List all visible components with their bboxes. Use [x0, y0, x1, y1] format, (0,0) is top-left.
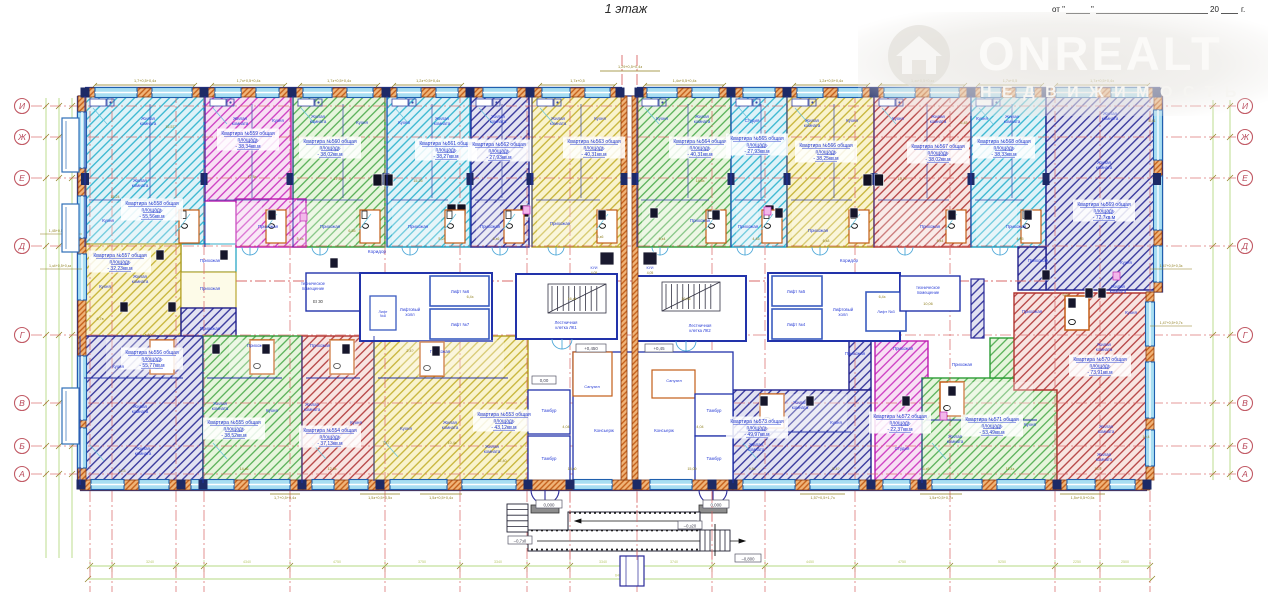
- svg-text:15,7з: 15,7з: [898, 177, 907, 181]
- svg-text:Б: Б: [19, 441, 25, 451]
- svg-text:Кухня: Кухня: [846, 118, 858, 123]
- svg-text:1,47+0,5+0,7з: 1,47+0,5+0,7з: [1160, 321, 1183, 325]
- svg-text:5,41: 5,41: [1148, 119, 1155, 123]
- svg-text:Кухня: Кухня: [112, 364, 124, 369]
- svg-text:14,з6: 14,з6: [240, 467, 249, 471]
- svg-text:4,05: 4,05: [647, 271, 654, 275]
- svg-text:Коридор: Коридор: [840, 258, 859, 263]
- svg-text:4,04: 4,04: [562, 425, 569, 429]
- svg-text:Прихожая: Прихожая: [408, 224, 429, 229]
- svg-text:17,5з: 17,5з: [248, 175, 257, 179]
- svg-text:6,7в: 6,7в: [96, 317, 103, 321]
- svg-text:Лифт №4: Лифт №4: [787, 322, 806, 327]
- svg-text:Прихожая: Прихожая: [1006, 224, 1027, 229]
- svg-text:9,5з: 9,5з: [749, 467, 756, 471]
- svg-text:Е: Е: [19, 173, 25, 183]
- svg-text:Прихожая: Прихожая: [920, 224, 941, 229]
- svg-text:Прихожая: Прихожая: [738, 224, 759, 229]
- svg-text:Кухня: Кухня: [99, 284, 111, 289]
- svg-text:комната: комната: [550, 121, 567, 126]
- svg-text:Кухня: Кухня: [1120, 260, 1132, 265]
- svg-text:1,7з+0,5+0,4з: 1,7з+0,5+0,4з: [237, 79, 261, 83]
- svg-text:1,2з+0,5+0,4з: 1,2з+0,5+0,4з: [819, 79, 843, 83]
- svg-text:Кухня: Кухня: [266, 408, 278, 413]
- svg-text:1,5з+0,5+0,4з: 1,5з+0,5+0,4з: [429, 496, 453, 500]
- svg-text:–0,з20: –0,з20: [684, 524, 697, 529]
- svg-text:Кухня: Кухня: [356, 120, 368, 125]
- svg-text:–0,800: –0,800: [742, 557, 755, 562]
- svg-text:Д: Д: [18, 241, 25, 251]
- svg-text:помещение: помещение: [917, 290, 940, 295]
- svg-text:помещение: помещение: [302, 286, 325, 291]
- svg-text:комната: комната: [1096, 347, 1113, 352]
- svg-text:Прихожая: Прихожая: [320, 224, 341, 229]
- svg-text:4750: 4750: [898, 560, 906, 564]
- svg-text:Прихожая: Прихожая: [1022, 309, 1043, 314]
- svg-text:+0,450: +0,450: [584, 346, 598, 351]
- svg-text:6,4з: 6,4з: [879, 295, 886, 299]
- svg-text:2250: 2250: [1073, 560, 1081, 564]
- svg-text:Прихожая: Прихожая: [480, 224, 501, 229]
- svg-text:Кухня: Кухня: [1024, 422, 1036, 427]
- svg-text:6,з8: 6,з8: [823, 239, 830, 243]
- svg-text:Тамбур: Тамбур: [542, 456, 557, 461]
- svg-text:Санузел: Санузел: [584, 384, 600, 389]
- svg-text:4,45: 4,45: [752, 237, 759, 241]
- svg-text:клетка ЛК2: клетка ЛК2: [689, 328, 711, 333]
- svg-text:Прихожая: Прихожая: [310, 343, 331, 348]
- svg-text:комната: комната: [140, 121, 157, 126]
- svg-text:В: В: [1242, 398, 1248, 408]
- svg-text:4340: 4340: [243, 560, 251, 564]
- svg-text:Кухня: Кухня: [272, 118, 284, 123]
- svg-text:комната: комната: [490, 119, 507, 124]
- svg-text:Студия: Студия: [895, 446, 910, 451]
- svg-text:Прихожая: Прихожая: [200, 258, 221, 263]
- svg-text:Лифт №3: Лифт №3: [877, 309, 895, 314]
- svg-text:комната: комната: [132, 409, 149, 414]
- svg-text:Кухня: Кухня: [892, 116, 904, 121]
- svg-text:16,з6: 16,з6: [568, 297, 577, 301]
- svg-text:6,55: 6,55: [348, 229, 355, 233]
- svg-text:3240: 3240: [146, 560, 154, 564]
- svg-text:Прихожая: Прихожая: [200, 286, 221, 291]
- svg-text:КУИ: КУИ: [591, 266, 598, 270]
- svg-text:15,24: 15,24: [110, 195, 119, 199]
- svg-text:16,06: 16,06: [681, 297, 690, 301]
- svg-text:Лифт №7: Лифт №7: [451, 322, 470, 327]
- svg-text:10,06: 10,06: [923, 302, 933, 306]
- svg-text:Ж: Ж: [17, 132, 27, 142]
- svg-text:комната: комната: [1102, 116, 1119, 121]
- svg-text:6,з4: 6,з4: [659, 237, 666, 241]
- svg-text:комната: комната: [484, 449, 501, 454]
- svg-text:12,40: 12,40: [497, 459, 506, 463]
- svg-text:А: А: [1241, 469, 1248, 479]
- svg-text:холл: холл: [838, 312, 848, 317]
- svg-text:Лифт №6: Лифт №6: [451, 289, 470, 294]
- svg-text:комната: комната: [132, 183, 149, 188]
- svg-text:Кухня: Кухня: [102, 218, 114, 223]
- svg-text:4,45: 4,45: [1016, 237, 1023, 241]
- svg-text:Тамбур: Тамбур: [542, 408, 557, 413]
- svg-text:комната: комната: [1096, 457, 1113, 462]
- svg-text:2500: 2500: [1121, 560, 1129, 564]
- svg-text:1,4з+0,5+0,4з: 1,4з+0,5+0,4з: [673, 79, 697, 83]
- svg-text:10,4: 10,4: [1142, 435, 1149, 439]
- svg-text:17,5з: 17,5з: [334, 177, 343, 181]
- svg-text:5250: 5250: [998, 560, 1006, 564]
- svg-text:2,4?: 2,4?: [406, 349, 413, 353]
- svg-text:5,х5: 5,х5: [923, 467, 930, 471]
- svg-text:9,69: 9,69: [1062, 293, 1069, 297]
- svg-text:10,4з: 10,4з: [448, 441, 457, 445]
- svg-text:комната: комната: [930, 119, 947, 124]
- svg-text:6,з6: 6,з6: [493, 237, 500, 241]
- svg-text:Прихожая: Прихожая: [258, 224, 279, 229]
- svg-text:Тамбур: Тамбур: [707, 456, 722, 461]
- svg-text:5,4з: 5,4з: [297, 237, 304, 241]
- svg-text:–0,7з0: –0,7з0: [514, 539, 527, 544]
- svg-text:з,40: з,40: [145, 333, 152, 337]
- svg-text:комната: комната: [232, 121, 249, 126]
- svg-text:комната: комната: [1098, 429, 1115, 434]
- svg-text:комната: комната: [748, 447, 765, 452]
- svg-text:Прихожая: Прихожая: [1028, 258, 1049, 263]
- svg-text:комната: комната: [304, 407, 321, 412]
- svg-text:ONREALT: ONREALT: [978, 27, 1223, 80]
- svg-text:15,2: 15,2: [1094, 467, 1101, 471]
- svg-text:1,29+0,5+0,4з: 1,29+0,5+0,4з: [618, 65, 642, 69]
- svg-text:Кухня: Кухня: [398, 120, 410, 125]
- svg-text:Прихожая: Прихожая: [808, 228, 829, 233]
- svg-text:Е: Е: [1242, 173, 1248, 183]
- svg-text:Консьерж: Консьерж: [654, 428, 674, 433]
- svg-text:комната: комната: [1096, 165, 1113, 170]
- svg-text:1,5з+0,5+0,5з: 1,5з+0,5+0,5з: [1071, 496, 1095, 500]
- svg-text:12,5: 12,5: [118, 469, 125, 473]
- svg-text:Кухня: Кухня: [976, 116, 988, 121]
- svg-text:4450: 4450: [806, 560, 814, 564]
- svg-text:15,00: 15,00: [687, 467, 696, 471]
- svg-text:7,47: 7,47: [382, 441, 389, 445]
- svg-text:Коридор: Коридор: [368, 249, 387, 254]
- svg-text:+0,45: +0,45: [653, 346, 665, 351]
- svg-text:6,з6: 6,з6: [597, 235, 604, 239]
- svg-text:И: И: [19, 101, 26, 111]
- svg-text:15,57: 15,57: [165, 125, 174, 129]
- svg-text:5,24: 5,24: [438, 237, 445, 241]
- svg-text:Прихожая: Прихожая: [893, 346, 914, 351]
- svg-text:15,з0: 15,з0: [568, 467, 577, 471]
- svg-text:1,7+0,5+0,4з: 1,7+0,5+0,4з: [274, 496, 296, 500]
- svg-text:Санузел: Санузел: [666, 378, 682, 383]
- svg-text:1,5з+0,5+0,7з: 1,5з+0,5+0,7з: [929, 496, 953, 500]
- svg-text:комната: комната: [310, 119, 327, 124]
- svg-text:3340: 3340: [599, 560, 607, 564]
- svg-text:комната: комната: [212, 406, 229, 411]
- svg-text:холл: холл: [405, 312, 415, 317]
- svg-text:комната: комната: [1110, 289, 1127, 294]
- svg-text:комната: комната: [132, 279, 149, 284]
- svg-text:комната: комната: [135, 451, 152, 456]
- svg-text:1,з4+0,5+0,зз: 1,з4+0,5+0,зз: [49, 264, 71, 268]
- svg-text:6,4з: 6,4з: [467, 295, 474, 299]
- svg-text:Кухня: Кухня: [656, 116, 668, 121]
- svg-text:Б: Б: [1242, 441, 1248, 451]
- svg-text:Ж: Ж: [1240, 132, 1250, 142]
- svg-text:Прихожая: Прихожая: [845, 351, 866, 356]
- svg-text:Кухня: Кухня: [594, 116, 606, 121]
- svg-text:14,5з: 14,5з: [696, 179, 705, 183]
- svg-text:3750: 3750: [418, 560, 426, 564]
- svg-text:1,7з+0,5: 1,7з+0,5: [570, 79, 585, 83]
- svg-text:Тамбур: Тамбур: [707, 408, 722, 413]
- svg-text:Лифт №5: Лифт №5: [787, 289, 806, 294]
- svg-text:комната: комната: [434, 121, 451, 126]
- svg-text:Студия: Студия: [745, 118, 760, 123]
- svg-text:комната: комната: [947, 439, 964, 444]
- svg-text:11,4з: 11,4з: [1006, 467, 1015, 471]
- svg-text:Кухня: Кухня: [400, 426, 412, 431]
- svg-text:5,4?: 5,4?: [832, 467, 839, 471]
- svg-text:1 этаж: 1 этаж: [605, 2, 649, 16]
- svg-text:Прихожая: Прихожая: [200, 326, 221, 331]
- svg-text:№8: №8: [380, 314, 386, 318]
- svg-text:комната: комната: [804, 123, 821, 128]
- svg-text:Кухня: Кухня: [350, 420, 362, 425]
- svg-text:5,45: 5,45: [960, 121, 967, 125]
- svg-text:1,7+0,5+0,4з: 1,7+0,5+0,4з: [134, 79, 156, 83]
- svg-text:EI 30: EI 30: [313, 299, 323, 304]
- svg-text:В: В: [19, 398, 25, 408]
- svg-text:3740: 3740: [670, 560, 678, 564]
- svg-text:НЕДВИЖИМОСТЬ: НЕДВИЖИМОСТЬ: [980, 84, 1247, 101]
- svg-text:Прихожая: Прихожая: [952, 362, 973, 367]
- svg-text:1,7з+0,5+0,4з: 1,7з+0,5+0,4з: [327, 79, 351, 83]
- svg-text:4750: 4750: [333, 560, 341, 564]
- svg-text:1,57+0,5+1,7з: 1,57+0,5+1,7з: [810, 496, 834, 500]
- svg-text:6,з4: 6,з4: [937, 239, 944, 243]
- svg-text:Прихожая: Прихожая: [690, 218, 711, 223]
- svg-text:А: А: [18, 469, 25, 479]
- svg-text:комната: комната: [1004, 119, 1021, 124]
- svg-text:3340: 3340: [494, 560, 502, 564]
- svg-text:КУИ: КУИ: [647, 266, 654, 270]
- svg-text:12,5з: 12,5з: [328, 467, 337, 471]
- svg-text:4,04: 4,04: [696, 425, 703, 429]
- svg-text:комната: комната: [442, 425, 459, 430]
- svg-text:1,5з+0,5+0,5з: 1,5з+0,5+0,5з: [368, 496, 392, 500]
- svg-text:15,25: 15,25: [413, 179, 422, 183]
- svg-text:комната: комната: [694, 119, 711, 124]
- svg-text:Кухня: Кухня: [830, 420, 842, 425]
- svg-text:4,05: 4,05: [591, 271, 598, 275]
- svg-text:1,2з+0,5+0,4з: 1,2з+0,5+0,4з: [416, 79, 440, 83]
- svg-text:клетка ЛК1: клетка ЛК1: [555, 325, 577, 330]
- svg-text:0,00: 0,00: [540, 378, 549, 383]
- svg-text:Прихожая: Прихожая: [550, 221, 571, 226]
- svg-text:0,000: 0,000: [544, 503, 556, 508]
- svg-text:Консьерж: Консьерж: [594, 428, 614, 433]
- svg-text:Кухня: Кухня: [1125, 310, 1137, 315]
- svg-text:Д: Д: [1241, 241, 1248, 251]
- svg-text:1,47+0,5+0,3з: 1,47+0,5+0,3з: [1160, 264, 1183, 268]
